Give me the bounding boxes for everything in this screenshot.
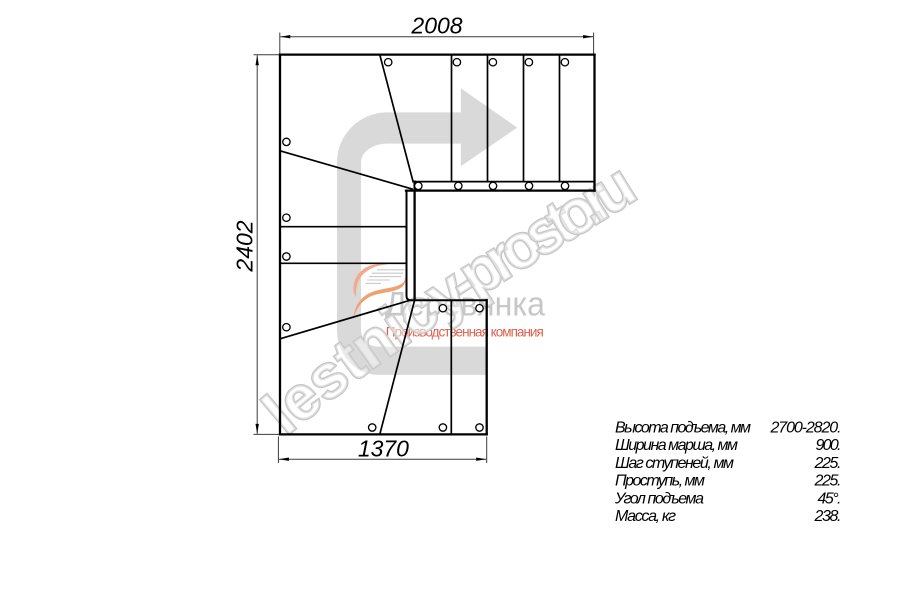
- svg-text:45°.: 45°.: [818, 490, 842, 507]
- svg-text:2008: 2008: [410, 12, 462, 38]
- svg-text:Угол подъема: Угол подъема: [614, 490, 704, 507]
- svg-text:Высота подъема, мм: Высота подъема, мм: [615, 420, 751, 437]
- svg-text:2700-2820.: 2700-2820.: [770, 420, 842, 437]
- svg-text:225.: 225.: [814, 455, 842, 472]
- svg-text:Проступь, мм: Проступь, мм: [615, 473, 705, 490]
- svg-text:2402: 2402: [232, 220, 258, 272]
- svg-text:Шаг ступеней, мм: Шаг ступеней, мм: [615, 455, 734, 472]
- svg-text:1370: 1370: [358, 436, 409, 462]
- svg-text:Масса, кг: Масса, кг: [615, 508, 676, 525]
- svg-text:225.: 225.: [814, 473, 842, 490]
- svg-text:900.: 900.: [816, 437, 842, 454]
- svg-text:Ширина марша, мм: Ширина марша, мм: [615, 437, 738, 454]
- svg-text:238.: 238.: [814, 508, 842, 525]
